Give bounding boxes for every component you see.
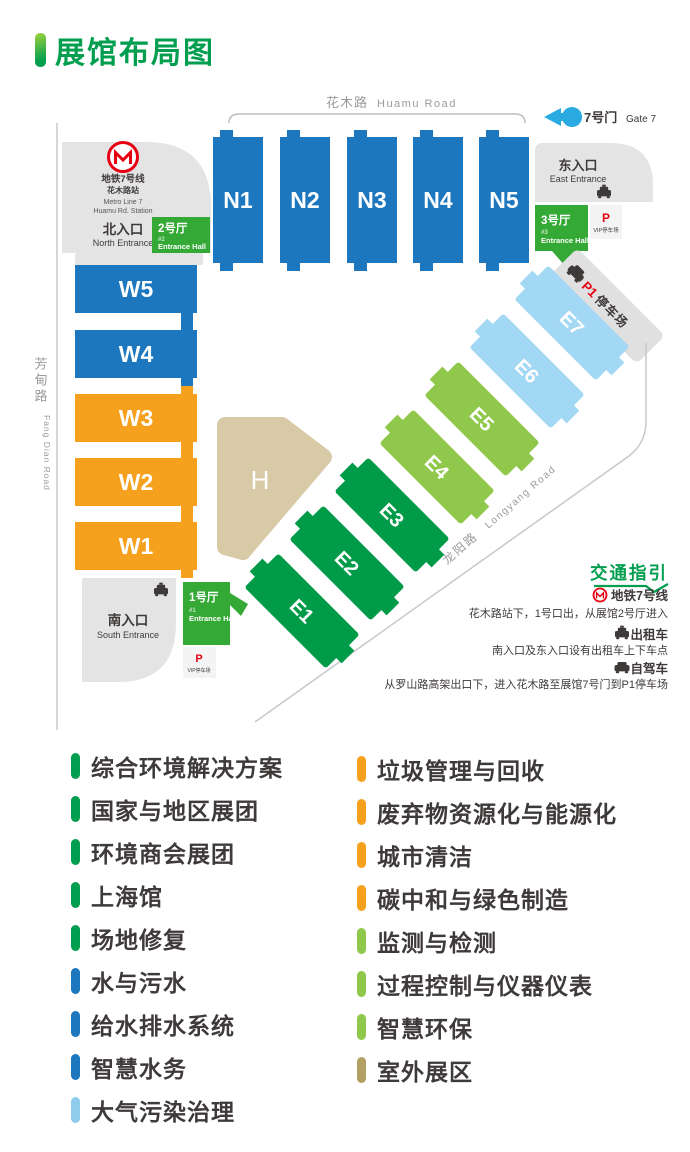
legend-color-bar-icon xyxy=(71,1097,80,1123)
gate7-label-cn: 7号门 xyxy=(584,110,617,125)
legend-item: 国家与地区展团 xyxy=(71,787,357,830)
legend-item: 场地修复 xyxy=(71,916,357,959)
traffic-taxi-label: 出租车 xyxy=(630,627,668,642)
legend-label: 监测与检测 xyxy=(377,924,497,958)
legend-item: 智慧水务 xyxy=(71,1045,357,1088)
legend-label: 环境商会展团 xyxy=(91,835,235,869)
traffic-car-label: 自驾车 xyxy=(630,661,668,676)
legend-color-bar-icon xyxy=(71,968,80,994)
legend: 综合环境解决方案国家与地区展团环境商会展团上海馆场地修复水与污水给水排水系统智慧… xyxy=(71,744,617,1131)
legend-item: 智慧环保 xyxy=(357,1005,617,1048)
hall-label-w2: W2 xyxy=(119,469,154,495)
hall-label-n1: N1 xyxy=(223,187,253,213)
hall2-label-en: Entrance Hall xyxy=(158,242,206,251)
legend-color-bar-icon xyxy=(71,839,80,865)
legend-label: 给水排水系统 xyxy=(91,1007,235,1041)
car-icon xyxy=(615,662,630,673)
legend-color-bar-icon xyxy=(357,1057,366,1083)
legend-color-bar-icon xyxy=(71,1054,80,1080)
metro-station-line2: 花木路站 xyxy=(107,185,139,195)
hall-label-n4: N4 xyxy=(423,187,453,213)
legend-color-bar-icon xyxy=(71,925,80,951)
legend-color-bar-icon xyxy=(357,842,366,868)
south-vip-label: VIP停车场 xyxy=(187,667,210,674)
traffic-guide-title: 交通指引 xyxy=(590,563,668,583)
hall-label-n2: N2 xyxy=(290,187,319,213)
legend-item: 大气污染治理 xyxy=(71,1088,357,1131)
venue-map-svg: 花木路 Huamu Road 7号门 Gate 7 芳甸路 Fang Dian … xyxy=(0,85,690,752)
legend-label: 碳中和与绿色制造 xyxy=(377,881,569,915)
legend-item: 给水排水系统 xyxy=(71,1002,357,1045)
legend-color-bar-icon xyxy=(357,756,366,782)
legend-label: 大气污染治理 xyxy=(91,1093,235,1127)
hall1-label-cn: 1号厅 xyxy=(189,591,219,604)
legend-label: 城市清洁 xyxy=(377,838,473,872)
north-entrance-label-en: North Entrance xyxy=(93,238,154,248)
legend-label: 智慧水务 xyxy=(91,1050,187,1084)
hall-label-h: H xyxy=(251,465,270,495)
legend-color-bar-icon xyxy=(357,1014,366,1040)
metro-station-line3: Metro Line 7 xyxy=(104,199,143,206)
legend-item: 环境商会展团 xyxy=(71,830,357,873)
legend-label: 综合环境解决方案 xyxy=(91,749,283,783)
legend-item: 碳中和与绿色制造 xyxy=(357,876,617,919)
legend-item: 室外展区 xyxy=(357,1048,617,1091)
fangdian-road-label-cn: 芳甸路 xyxy=(33,357,48,405)
legend-item: 城市清洁 xyxy=(357,833,617,876)
hall-label-n3: N3 xyxy=(357,187,386,213)
metro-mini-icon xyxy=(594,589,607,602)
page-header: 展馆布局图 xyxy=(35,28,215,72)
taxi-icon xyxy=(615,626,629,640)
north-entrance-label-cn: 北入口 xyxy=(103,222,144,237)
longyang-road-label-en: Longyang Road xyxy=(483,464,558,531)
hall-label-w4: W4 xyxy=(119,341,154,367)
legend-color-bar-icon xyxy=(357,799,366,825)
metro-station-line4: Huamu Rd. Station xyxy=(93,208,152,215)
huamu-road-label-cn: 花木路 xyxy=(326,95,368,110)
page-title: 展馆布局图 xyxy=(55,28,215,72)
legend-label: 上海馆 xyxy=(91,878,163,912)
legend-item: 监测与检测 xyxy=(357,919,617,962)
gate7-label-en: Gate 7 xyxy=(626,114,656,125)
legend-item: 垃圾管理与回收 xyxy=(357,747,617,790)
east-vip-label: VIP停车场 xyxy=(593,226,619,234)
south-entrance-label-cn: 南入口 xyxy=(108,612,149,628)
legend-color-bar-icon xyxy=(71,882,80,908)
legend-color-bar-icon xyxy=(71,796,80,822)
traffic-taxi-desc: 南入口及东入口设有出租车上下车点 xyxy=(492,643,668,657)
legend-column-left: 综合环境解决方案国家与地区展团环境商会展团上海馆场地修复水与污水给水排水系统智慧… xyxy=(71,744,357,1131)
south-entrance-label-en: South Entrance xyxy=(97,630,159,640)
hall-label-w5: W5 xyxy=(119,276,154,302)
venue-map: 花木路 Huamu Road 7号门 Gate 7 芳甸路 Fang Dian … xyxy=(0,85,690,752)
metro-logo-icon xyxy=(109,143,138,172)
legend-color-bar-icon xyxy=(71,1011,80,1037)
entrance-hall-1-connector xyxy=(230,593,248,616)
legend-label: 国家与地区展团 xyxy=(91,792,259,826)
legend-color-bar-icon xyxy=(71,753,80,779)
east-entrance-label-cn: 东入口 xyxy=(558,158,597,173)
hall-label-n5: N5 xyxy=(489,187,519,213)
hall1-label-en: Entrance Hall xyxy=(189,614,237,623)
east-entrance-label-en: East Entrance xyxy=(550,174,607,184)
legend-label: 垃圾管理与回收 xyxy=(377,752,545,786)
legend-label: 废弃物资源化与能源化 xyxy=(377,795,617,829)
north-walkway xyxy=(75,253,203,265)
huamu-road-label-en: Huamu Road xyxy=(377,98,457,110)
legend-color-bar-icon xyxy=(357,928,366,954)
legend-label: 场地修复 xyxy=(91,921,187,955)
legend-label: 水与污水 xyxy=(91,964,187,998)
traffic-metro-label: 地铁7号线 xyxy=(611,588,668,603)
gate7-arrow-icon xyxy=(544,107,582,127)
hall3-label-en: Entrance Hall xyxy=(541,236,589,245)
traffic-car-desc: 从罗山路高架出口下，进入花木路至展馆7号门到P1停车场 xyxy=(384,677,668,691)
hall3-label-cn: 3号厅 xyxy=(541,214,571,227)
legend-item: 过程控制与仪器仪表 xyxy=(357,962,617,1005)
legend-label: 室外展区 xyxy=(377,1053,473,1087)
hall2-label-cn: 2号厅 xyxy=(158,222,188,235)
huamu-road-line xyxy=(229,114,525,123)
hall-label-w1: W1 xyxy=(119,533,154,559)
metro-station-line1: 地铁7号线 xyxy=(101,173,145,185)
title-accent-bar-icon xyxy=(35,33,46,67)
legend-label: 过程控制与仪器仪表 xyxy=(377,967,593,1001)
legend-item: 水与污水 xyxy=(71,959,357,1002)
legend-label: 智慧环保 xyxy=(377,1010,473,1044)
hall-label-w3: W3 xyxy=(119,405,154,431)
legend-column-right: 垃圾管理与回收废弃物资源化与能源化城市清洁碳中和与绿色制造监测与检测过程控制与仪… xyxy=(357,747,617,1131)
south-vip-p: P xyxy=(195,653,202,665)
legend-color-bar-icon xyxy=(357,971,366,997)
east-vip-p: P xyxy=(602,211,610,225)
legend-color-bar-icon xyxy=(357,885,366,911)
legend-item: 综合环境解决方案 xyxy=(71,744,357,787)
fangdian-road-label-en: Fang Dian Road xyxy=(42,415,52,491)
traffic-metro-desc: 花木路站下，1号口出，从展馆2号厅进入 xyxy=(469,606,668,620)
legend-item: 上海馆 xyxy=(71,873,357,916)
longyang-road-label-cn: 龙阳路 xyxy=(439,528,481,567)
legend-item: 废弃物资源化与能源化 xyxy=(357,790,617,833)
